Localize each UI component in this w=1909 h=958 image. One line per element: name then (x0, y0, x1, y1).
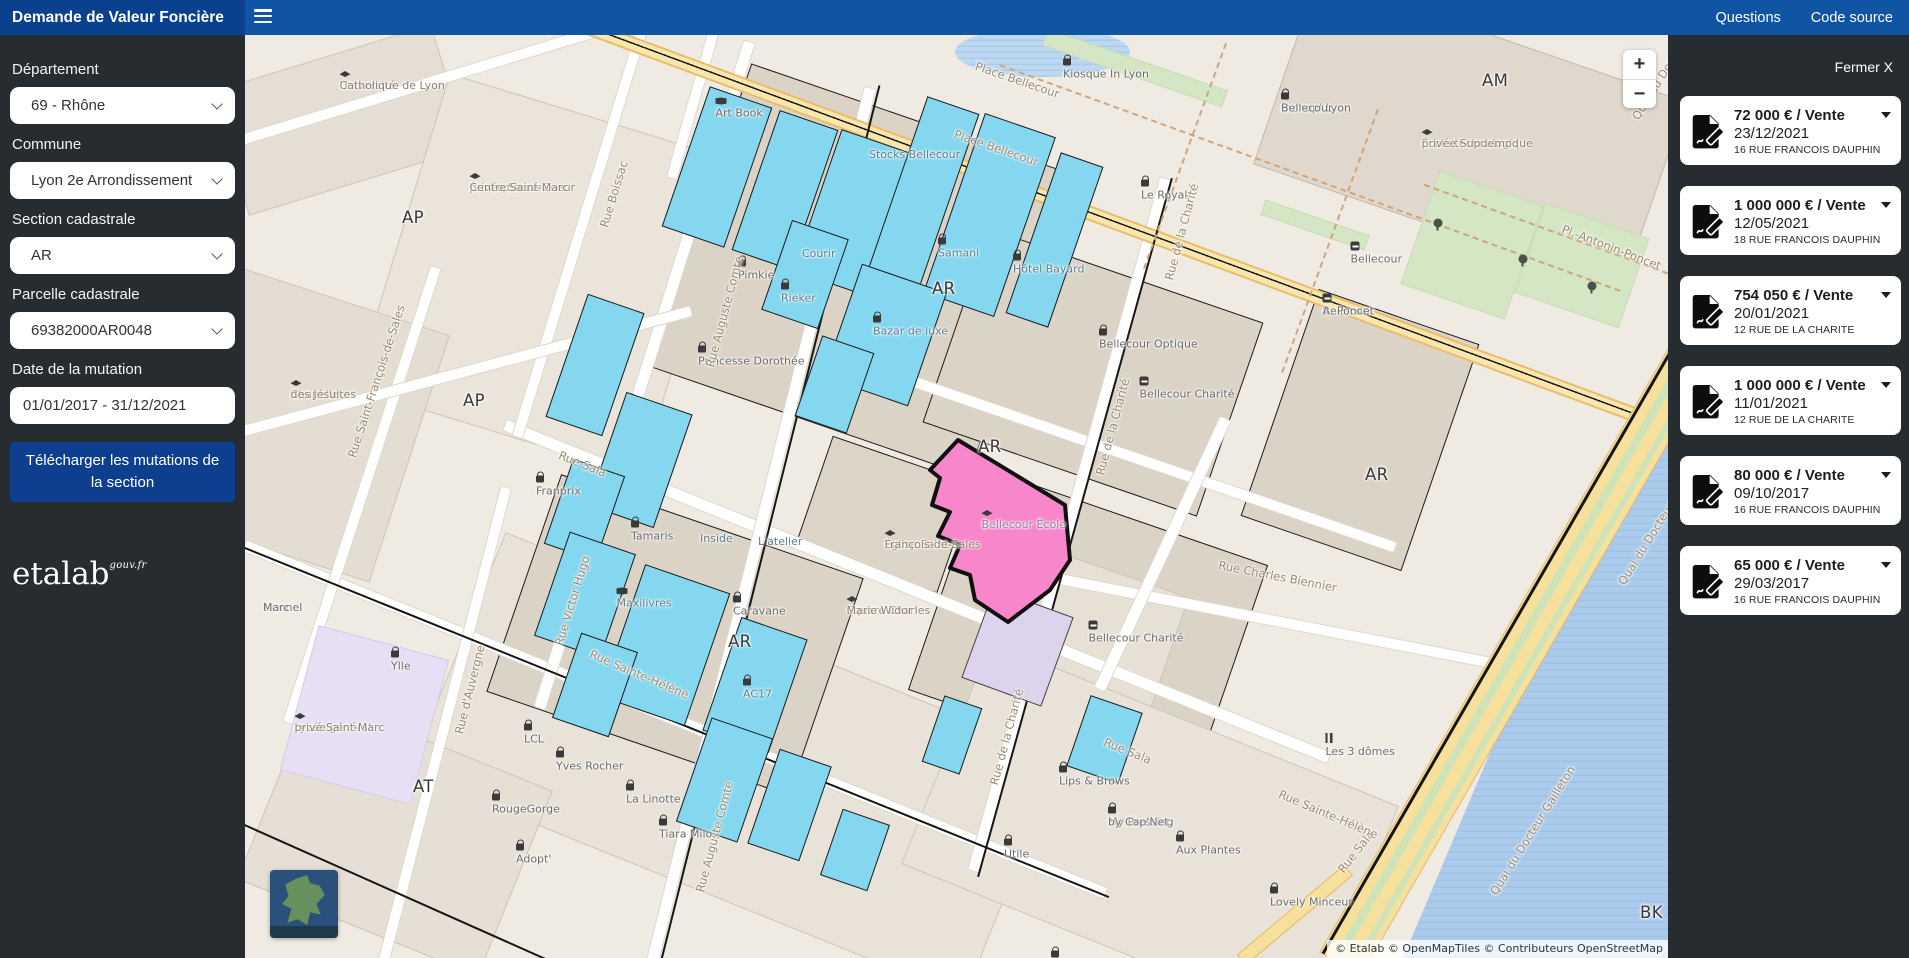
bag-icon (733, 596, 741, 603)
poi-label: BellecourA. Poncet (1323, 294, 1332, 305)
mutation-address: 16 RUE FRANCOIS DAUPHIN (1734, 504, 1880, 516)
bag-icon (524, 724, 532, 731)
book-icon (716, 98, 727, 105)
school-icon (847, 596, 858, 602)
school-icon (1422, 129, 1433, 135)
zoom-in-button[interactable]: + (1623, 50, 1656, 79)
school-icon (885, 530, 896, 536)
nav-link-code-source[interactable]: Code source (1811, 10, 1893, 26)
mutation-card[interactable]: 65 000 € / Vente 29/03/2017 16 RUE FRANC… (1680, 546, 1901, 615)
bag-icon (738, 260, 746, 267)
poi-label: Le Royal (1141, 176, 1149, 189)
mutation-date: 11/01/2021 (1734, 395, 1866, 412)
expand-caret-icon[interactable] (1881, 112, 1891, 118)
poi-label: Lycée généralprivé Saint-Marc (295, 713, 306, 721)
parcelle-select[interactable]: 69382000AR0048 (10, 312, 235, 349)
transit-icon (1089, 621, 1098, 630)
expand-caret-icon[interactable] (1881, 472, 1891, 478)
commune-label: Commune (12, 136, 235, 153)
bag-icon (781, 283, 789, 290)
poi-label: Princesse Dorothée (698, 342, 706, 355)
commune-select[interactable]: Lyon 2e Arrondissement (10, 162, 235, 199)
poi-label: monop' LyonBellecour (1281, 89, 1289, 102)
school-icon (295, 713, 306, 719)
mutation-price: 754 050 € / Vente (1734, 287, 1854, 304)
bag-icon (391, 651, 399, 658)
expand-caret-icon[interactable] (1881, 202, 1891, 208)
mutation-address: 18 RUE FRANCOIS DAUPHIN (1734, 234, 1880, 246)
poi-label: École technologiqueprivée Supdemod (1422, 129, 1433, 137)
contract-icon (1688, 294, 1726, 330)
mutation-price: 72 000 € / Vente (1734, 107, 1880, 124)
mutation-price: 1 000 000 € / Vente (1734, 197, 1880, 214)
poi-label: Bellecour (1351, 242, 1360, 253)
poi-label: Ylle (391, 647, 399, 660)
poi-label: UniversitéCatholique de Lyon (340, 71, 351, 79)
date-mutation-label: Date de la mutation (12, 361, 235, 378)
bag-icon (1108, 807, 1116, 814)
mutation-price: 65 000 € / Vente (1734, 557, 1880, 574)
poi-label: Rieker (781, 279, 789, 292)
poi-label: Utile (1004, 835, 1012, 848)
parcelle-label: Parcelle cadastrale (12, 286, 235, 303)
bag-icon (1013, 254, 1021, 261)
bag-icon (1059, 766, 1067, 773)
section-select[interactable]: AR (10, 237, 235, 274)
bag-icon (536, 476, 544, 483)
mutation-price: 1 000 000 € / Vente (1734, 377, 1866, 394)
poi-label: Caravane (733, 592, 741, 605)
app-title: Demande de Valeur Foncière (0, 0, 245, 35)
download-mutations-button[interactable]: Télécharger les mutations de la section (10, 442, 235, 502)
etalab-logo: etalabgouv.fr (12, 556, 235, 592)
map-attribution: © Etalab © OpenMapTiles © Contributeurs … (1327, 940, 1668, 958)
bag-icon (492, 794, 500, 801)
transit-icon (1351, 242, 1360, 251)
poi-label: Bellecour Charité (1089, 621, 1098, 632)
poi-label: Tiara Milo (659, 815, 667, 828)
search-sidebar: Département 69 - Rhône Commune Lyon 2e A… (0, 35, 245, 958)
section-label: Section cadastrale (12, 211, 235, 228)
mutation-card[interactable]: 80 000 € / Vente 09/10/2017 16 RUE FRANC… (1680, 456, 1901, 525)
contract-icon (1688, 114, 1726, 150)
bag-icon (659, 819, 667, 826)
tree-icon (1434, 219, 1443, 228)
menu-icon[interactable] (254, 9, 272, 26)
contract-icon (1688, 564, 1726, 600)
poi-label: Bazar de luxe (873, 312, 881, 325)
bag-icon (1270, 887, 1278, 894)
expand-caret-icon[interactable] (1881, 382, 1891, 388)
transit-icon (1323, 294, 1332, 303)
close-panel-button[interactable]: Fermer X (1680, 59, 1901, 75)
poi-label (1519, 255, 1528, 266)
poi-label: Bellecour Charité (1140, 377, 1149, 388)
mutation-date: 09/10/2017 (1734, 485, 1880, 502)
poi-label: Adopt' (516, 840, 524, 853)
bag-icon (938, 238, 946, 245)
expand-caret-icon[interactable] (1881, 292, 1891, 298)
poi-label: Chapelledes Jésuites (291, 380, 302, 388)
mutation-card[interactable]: 1 000 000 € / Vente 11/01/2021 12 RUE DE… (1680, 366, 1901, 435)
poi-label: Maxilivres (617, 588, 628, 597)
poi-label: Hôtel Bayard (1013, 250, 1021, 263)
zoom-out-button[interactable]: − (1623, 79, 1656, 108)
contract-icon (1688, 474, 1726, 510)
poi-label: AC17 (743, 675, 751, 688)
tree-icon (1588, 282, 1597, 291)
poi-label: Bellecour École (982, 510, 993, 518)
contract-icon (1688, 204, 1726, 240)
mutation-date: 12/05/2021 (1734, 215, 1880, 232)
bag-icon (743, 679, 751, 686)
poi-label: Aurélia (1051, 947, 1059, 958)
poi-label: Les 3 dômes (1326, 733, 1333, 745)
poi-label: Église Saint-François-de-Sales (885, 530, 896, 538)
mutation-address: 16 RUE FRANCOIS DAUPHIN (1734, 594, 1880, 606)
bag-icon (1099, 329, 1107, 336)
transit-icon (1140, 377, 1149, 386)
bag-icon (1063, 59, 1071, 66)
top-navbar: Demande de Valeur Foncière Questions Cod… (0, 0, 1909, 35)
map-labels-layer: UniversitéCatholique de LyonArt BookPlac… (245, 35, 1668, 958)
poi-label: Square CharlesMarie Widor (847, 596, 858, 604)
expand-caret-icon[interactable] (1881, 562, 1891, 568)
mutation-card[interactable]: 754 050 € / Vente 20/01/2021 12 RUE DE L… (1680, 276, 1901, 345)
bag-icon (626, 784, 634, 791)
map-canvas[interactable]: UniversitéCatholique de LyonArt BookPlac… (245, 35, 1668, 958)
poi-label: Kiosque In Lyon (1063, 55, 1071, 68)
mutation-date: 20/01/2021 (1734, 305, 1854, 322)
school-icon (470, 173, 481, 179)
food-icon (1326, 733, 1333, 743)
zoom-control: + − (1623, 50, 1656, 108)
poi-label: RougeGorge (492, 790, 500, 803)
mutation-card[interactable]: 1 000 000 € / Vente 12/05/2021 18 RUE FR… (1680, 186, 1901, 255)
poi-label: Franprix (536, 472, 544, 485)
bag-icon (1281, 93, 1289, 100)
poi-label (1434, 219, 1443, 230)
navbar-links: Questions Code source (1715, 0, 1893, 35)
poi-label: La Linotte (626, 780, 634, 793)
date-range-input[interactable]: 01/01/2017 - 31/12/2021 (10, 387, 235, 424)
bag-icon (1004, 839, 1012, 846)
poi-label: Yves Rocher (556, 747, 564, 760)
school-icon (340, 71, 351, 77)
poi-label: LCL (524, 720, 532, 733)
contract-icon (1688, 384, 1726, 420)
layer-switcher-minimap[interactable] (270, 870, 338, 938)
bag-icon (698, 346, 706, 353)
departement-label: Département (12, 61, 235, 78)
poi-label: Samani (938, 234, 946, 247)
mutation-address: 16 RUE FRANCOIS DAUPHIN (1734, 144, 1880, 156)
book-icon (617, 588, 628, 595)
bag-icon (516, 844, 524, 851)
bag-icon (556, 751, 564, 758)
nav-link-questions[interactable]: Questions (1715, 10, 1780, 26)
poi-label: Tamaris (631, 517, 639, 530)
poi-label (1588, 282, 1597, 293)
mutations-panel: Fermer X 72 000 € / Vente 23/12/2021 16 … (1668, 35, 1909, 958)
mutation-date: 29/03/2017 (1734, 575, 1880, 592)
poi-label: Lips & Brows (1059, 762, 1067, 775)
mutation-date: 23/12/2021 (1734, 125, 1880, 142)
poi-label: Lovely Minceur (1270, 883, 1278, 896)
bag-icon (1051, 951, 1059, 958)
school-icon (291, 380, 302, 386)
poi-label: Pimkie (738, 256, 746, 269)
poi-label: Aux Plantes (1176, 831, 1184, 844)
bag-icon (1141, 180, 1149, 187)
poi-label: Art Book (716, 98, 727, 107)
poi-label: My Pressingby Cap'Net (1108, 803, 1116, 816)
tree-icon (1519, 255, 1528, 264)
school-icon (982, 510, 993, 516)
bag-icon (873, 316, 881, 323)
mutation-price: 80 000 € / Vente (1734, 467, 1880, 484)
bag-icon (631, 521, 639, 528)
departement-select[interactable]: 69 - Rhône (10, 87, 235, 124)
mutation-card[interactable]: 72 000 € / Vente 23/12/2021 16 RUE FRANC… (1680, 96, 1901, 165)
bag-icon (1176, 835, 1184, 842)
poi-label: École primaireprivée Sacré-CoeurCentre S… (470, 173, 481, 181)
mutation-address: 12 RUE DE LA CHARITE (1734, 414, 1866, 426)
poi-label: Bellecour Optique (1099, 325, 1107, 338)
mutation-address: 12 RUE DE LA CHARITE (1734, 324, 1854, 336)
